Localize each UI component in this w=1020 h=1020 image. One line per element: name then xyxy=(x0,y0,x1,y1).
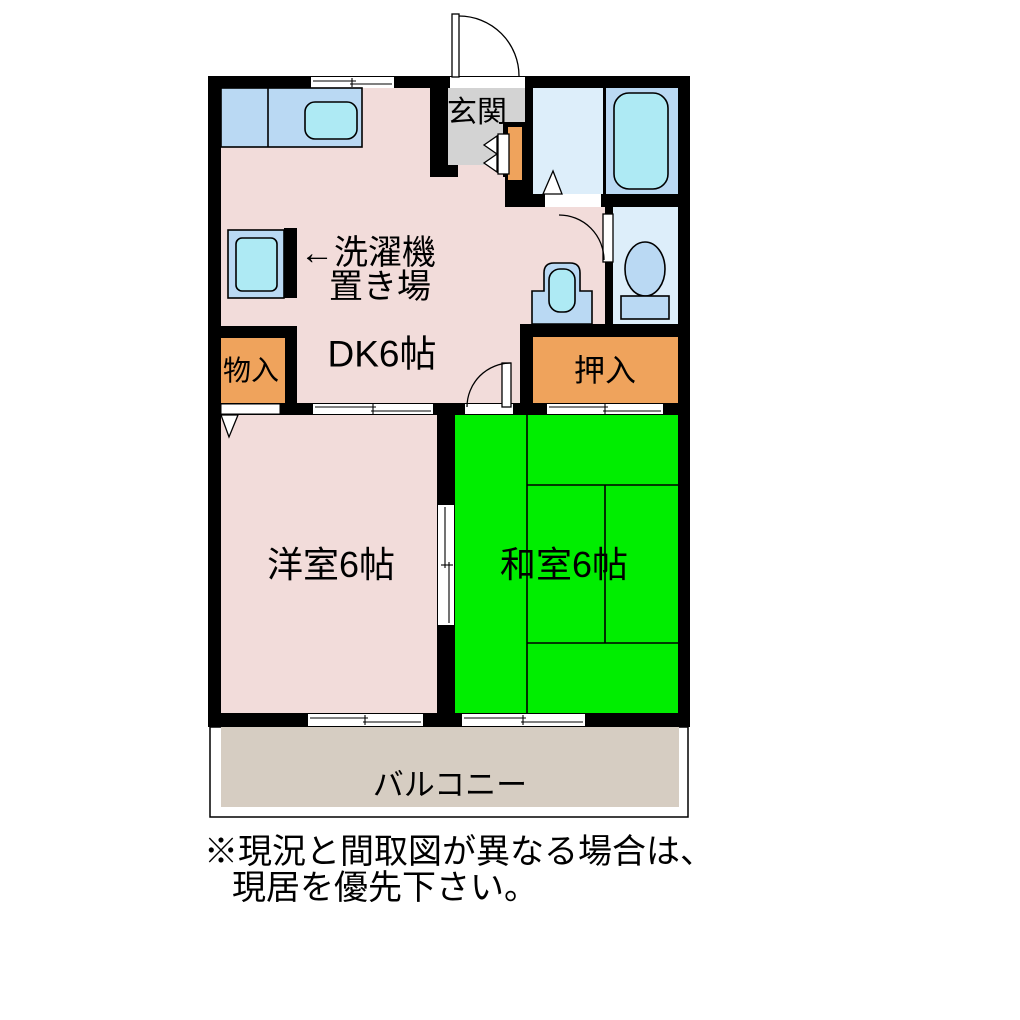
washitsu-label: 和室6帖 xyxy=(500,547,628,583)
entrance-opening xyxy=(450,77,525,88)
oshiire-label: 押入 xyxy=(574,356,636,387)
genkan-bifold-panel xyxy=(498,134,509,174)
kitchen-sink xyxy=(305,102,357,139)
disclaimer-line1: ※現況と間取図が異なる場合は、 xyxy=(204,835,714,869)
washing-machine xyxy=(236,238,277,291)
bathroom-door-opening xyxy=(545,194,601,207)
bathtub xyxy=(614,93,668,189)
washer-area-label-line2: 置き場 xyxy=(329,270,431,304)
entrance-door-arc xyxy=(459,16,519,76)
yoshitsu-entry-opening xyxy=(221,404,280,414)
disclaimer-line2: 現居を優先下さい。 xyxy=(232,871,538,905)
washer-area-label-line1: ←洗濯機 xyxy=(300,236,436,270)
dk-label: DK6帖 xyxy=(328,336,437,373)
balcony-label: バルコニー xyxy=(373,770,527,801)
washbasin-bowl xyxy=(549,269,575,312)
toilet-bowl xyxy=(625,242,665,296)
floor-plan-page: 玄関 ←洗濯機 置き場 DK6帖 物入 押入 洋室6帖 和室6帖 バルコニー ※… xyxy=(0,0,1020,1020)
toilet-tank xyxy=(621,296,669,319)
washroom-floor xyxy=(533,88,603,194)
hall-floor-upper xyxy=(430,177,505,207)
dk-washitsu-door-leaf xyxy=(502,363,511,407)
mono-iri-label: 物入 xyxy=(223,357,279,385)
washer-alcove-wall xyxy=(284,228,297,298)
genkan-label: 玄関 xyxy=(447,98,507,128)
entrance-door-leaf xyxy=(452,14,459,77)
yoshitsu-label: 洋室6帖 xyxy=(267,547,395,583)
shoe-cabinet xyxy=(508,127,522,180)
toilet-door-leaf xyxy=(603,214,613,262)
